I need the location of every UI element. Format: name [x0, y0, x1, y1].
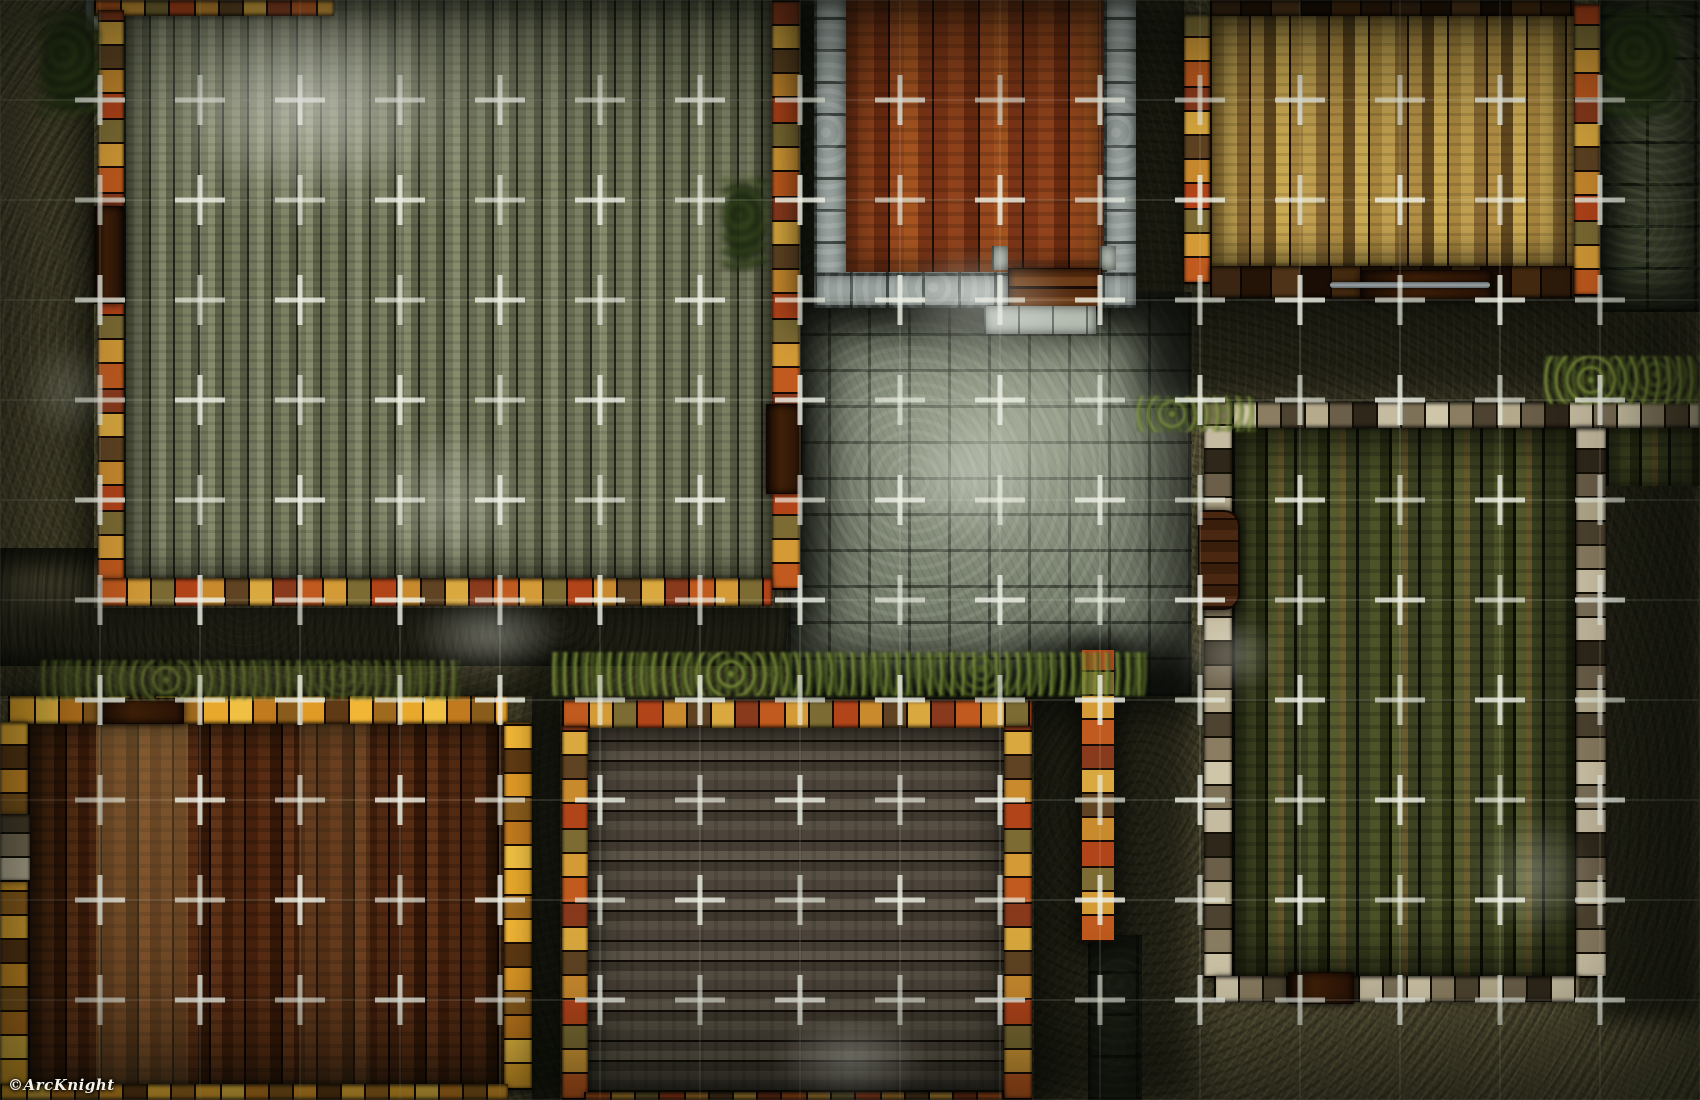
border-planks-left-grey-patch [0, 814, 30, 882]
door-metal-bar-icon [1330, 282, 1490, 288]
border-planks-right [1574, 4, 1600, 296]
border-planks-top [8, 696, 508, 724]
border-planks-right [504, 722, 532, 1090]
light-glare [380, 580, 600, 690]
door-south-icon [1288, 972, 1354, 1004]
border-planks-right [1004, 726, 1032, 1100]
light-glare [1450, 790, 1620, 960]
border-planks-left [562, 726, 588, 1100]
floor-dark-green-planks-wing [1606, 428, 1700, 486]
light-glare [330, 400, 570, 600]
door-west-icon [1198, 510, 1240, 610]
door-north-icon [98, 698, 184, 724]
bush [722, 178, 766, 270]
moss-strip [1544, 356, 1700, 404]
light-glare [120, 0, 500, 240]
light-worn-planks [96, 722, 188, 1084]
building-top-right-house [1184, 0, 1600, 298]
floor-tan-planks [1210, 14, 1574, 266]
stone-wall-left [814, 0, 846, 308]
border-planks-right [772, 0, 800, 590]
light-glare [1160, 600, 1300, 710]
border-planks-left [1184, 14, 1210, 284]
door-east-icon [766, 404, 802, 494]
light-glare [860, 400, 1080, 560]
bush [38, 12, 100, 116]
moss-strip [552, 652, 1148, 696]
battle-map: ©ArcKnight [0, 0, 1700, 1100]
building-bottom-left-house [0, 696, 532, 1100]
light-glare [742, 1000, 962, 1100]
border-planks-bottom [1214, 976, 1580, 1002]
bush [1604, 8, 1680, 118]
border-planks-top [1210, 0, 1574, 16]
border-planks-top [1232, 402, 1700, 428]
border-planks-top [562, 700, 1032, 728]
light-glare [0, 320, 130, 460]
light-glare [850, 230, 1110, 370]
watermark: ©ArcKnight [8, 1076, 115, 1094]
light-worn-planks [300, 722, 370, 1084]
moss-strip [1136, 396, 1256, 432]
border-planks-left [0, 722, 28, 1086]
